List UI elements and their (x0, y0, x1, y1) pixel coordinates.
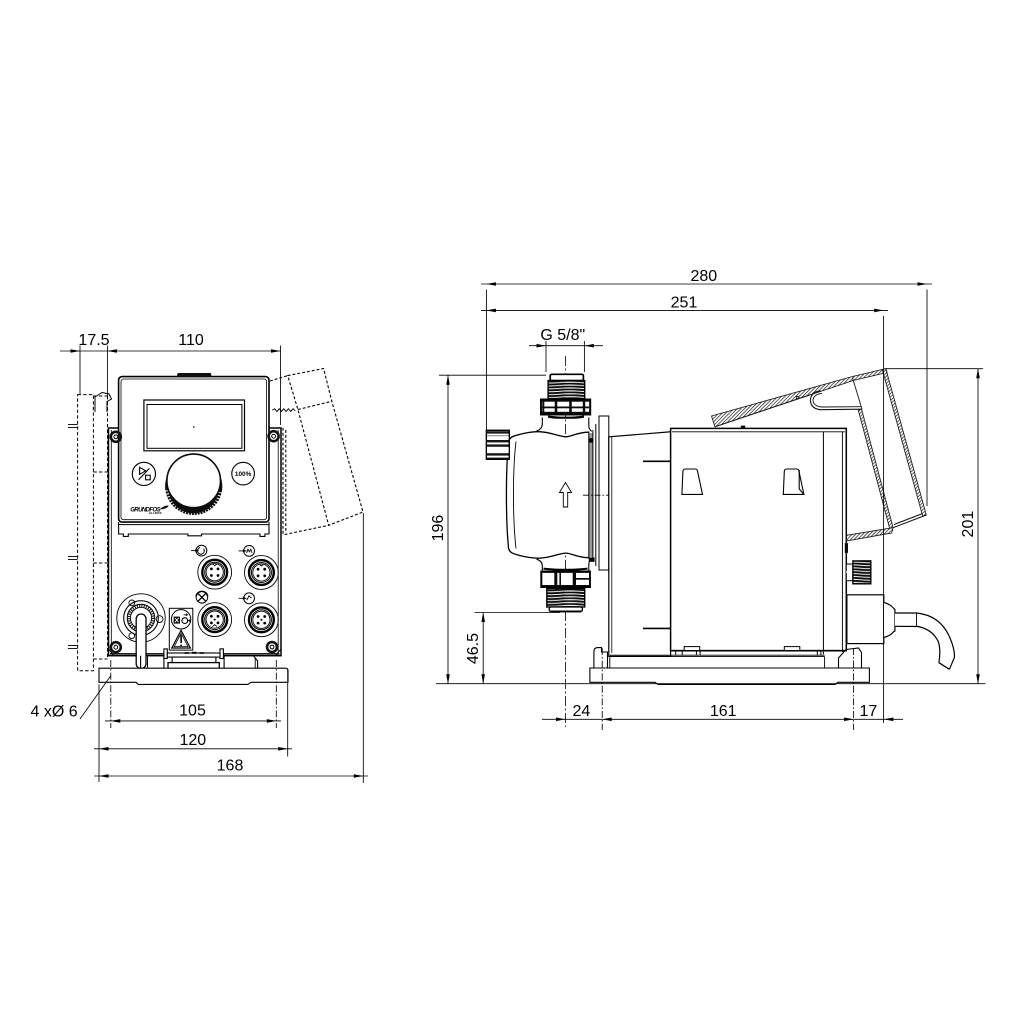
svg-text:251: 251 (671, 294, 698, 311)
svg-text:201: 201 (960, 511, 977, 538)
svg-text:110: 110 (178, 332, 204, 349)
svg-text:4 xØ 6: 4 xØ 6 (31, 704, 78, 721)
svg-text:17.5: 17.5 (78, 332, 109, 349)
svg-text:46.5: 46.5 (465, 633, 482, 664)
svg-text:120: 120 (179, 732, 206, 749)
svg-text:168: 168 (217, 758, 244, 775)
svg-text:105: 105 (179, 703, 206, 720)
svg-text:100%: 100% (235, 471, 252, 478)
svg-text:G 5/8": G 5/8" (540, 327, 585, 344)
svg-text:196: 196 (430, 515, 447, 542)
svg-text:ALLDOS: ALLDOS (149, 511, 162, 515)
svg-text:17: 17 (860, 703, 878, 720)
svg-text:280: 280 (690, 268, 717, 285)
svg-text:24: 24 (573, 703, 591, 720)
svg-text:161: 161 (710, 703, 737, 720)
